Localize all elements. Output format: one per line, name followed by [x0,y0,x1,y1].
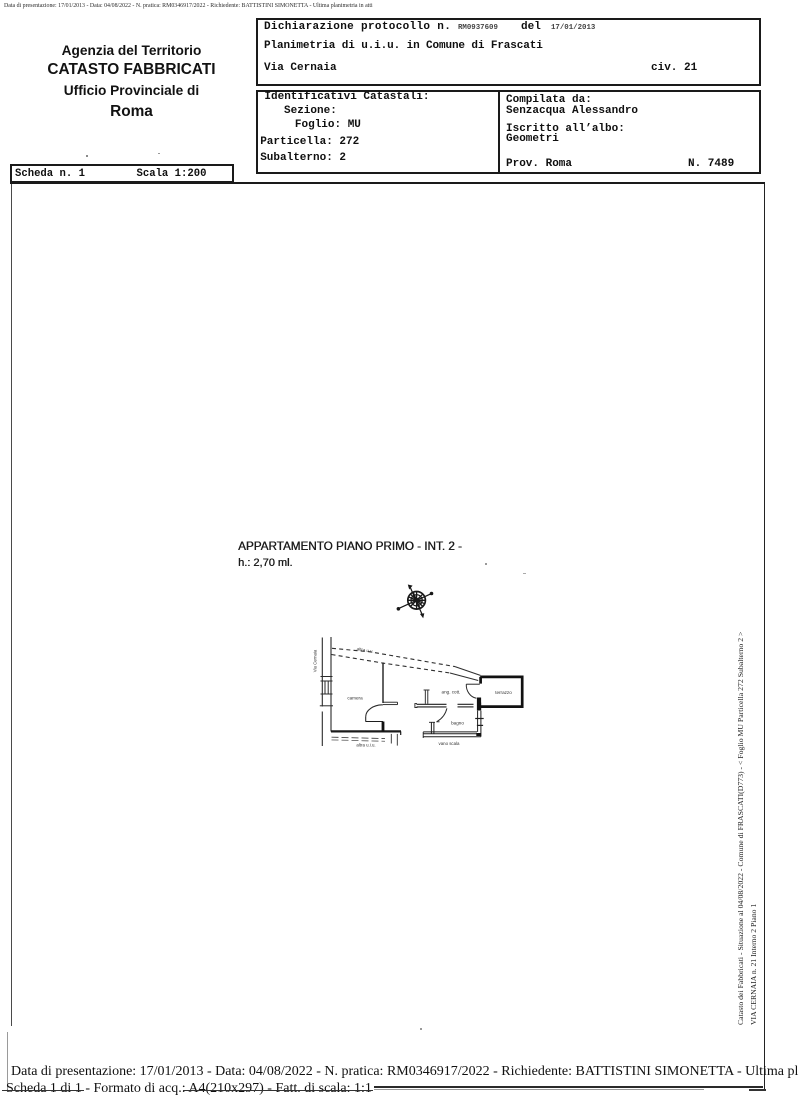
svg-text:altra u.u.: altra u.u. [356,646,374,654]
svg-text:vano scala: vano scala [439,741,461,746]
svg-text:bagno: bagno [451,721,464,726]
svg-text:camera: camera [347,696,363,701]
svg-text:terrazzo: terrazzo [495,690,512,695]
svg-text:ang. cott.: ang. cott. [442,689,461,694]
svg-text:altra u.i.u.: altra u.i.u. [356,742,375,747]
svg-text:Via Cernaia: Via Cernaia [313,649,318,672]
